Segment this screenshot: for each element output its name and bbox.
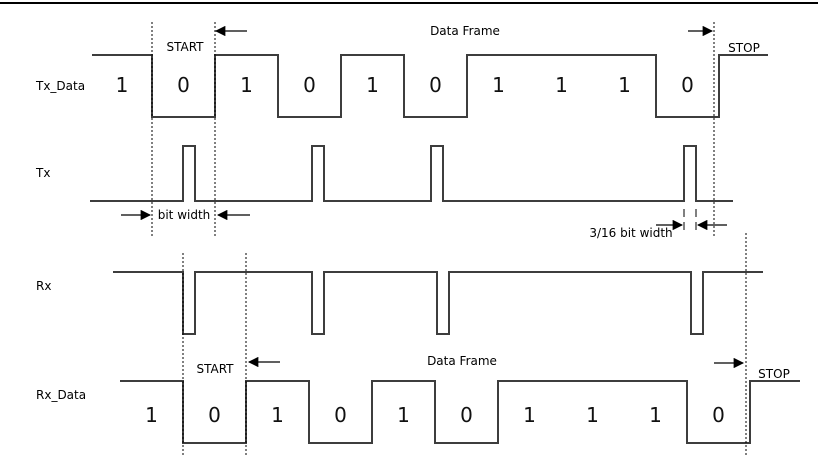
bit-label: 1 — [397, 403, 410, 427]
start-label-bottom: START — [196, 362, 233, 376]
start-label-top: START — [166, 40, 203, 54]
bit-label: 0 — [460, 403, 473, 427]
three-sixteenths-bit-width-label: 3/16 bit width — [589, 226, 672, 240]
bit-label: 1 — [523, 403, 536, 427]
uart-irda-timing-diagram: Tx_Data Tx Rx Rx_Data START Data Frame S… — [0, 0, 818, 472]
bit-label: 0 — [681, 73, 694, 97]
bit-label: 0 — [334, 403, 347, 427]
bit-label: 0 — [303, 73, 316, 97]
bit-label: 1 — [492, 73, 505, 97]
bit-label: 1 — [618, 73, 631, 97]
bit-label: 1 — [586, 403, 599, 427]
bit-label: 0 — [177, 73, 190, 97]
bit-label: 1 — [649, 403, 662, 427]
signal-label-rx-data: Rx_Data — [36, 388, 86, 402]
signal-label-tx-data: Tx_Data — [36, 79, 85, 93]
stop-label-top: STOP — [728, 41, 760, 55]
bit-label: 1 — [366, 73, 379, 97]
data-frame-label-bottom: Data Frame — [427, 354, 497, 368]
signal-label-rx: Rx — [36, 279, 51, 293]
waveform-canvas — [0, 0, 818, 472]
bit-label: 1 — [271, 403, 284, 427]
bit-label: 0 — [712, 403, 725, 427]
bit-label: 1 — [555, 73, 568, 97]
bit-label: 1 — [145, 403, 158, 427]
data-frame-label-top: Data Frame — [430, 24, 500, 38]
bit-label: 0 — [429, 73, 442, 97]
signal-label-tx: Tx — [36, 166, 50, 180]
stop-label-bottom: STOP — [758, 367, 790, 381]
bit-label: 1 — [116, 73, 129, 97]
bit-width-label: bit width — [158, 208, 211, 222]
bit-label: 1 — [240, 73, 253, 97]
bit-label: 0 — [208, 403, 221, 427]
rx-waveform — [113, 272, 763, 334]
tx-waveform — [90, 146, 733, 201]
